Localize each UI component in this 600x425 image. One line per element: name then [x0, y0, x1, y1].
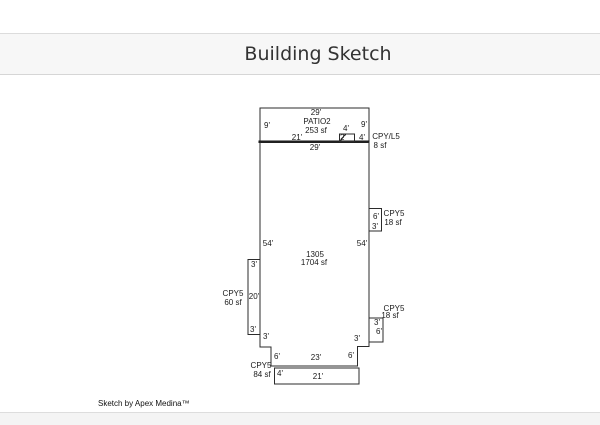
dim-cpyl5-box-inner: 2' — [340, 134, 346, 142]
dim-ru-height: 6' — [373, 213, 379, 221]
area-label-ru-name: CPY5 — [384, 210, 405, 218]
area-label-lc-name: CPY5 — [223, 290, 244, 298]
dim-ru-width: 3' — [372, 223, 378, 231]
area-label-lc-sf: 60 sf — [224, 299, 241, 307]
area-label-main-sf: 1704 sf — [301, 259, 327, 267]
dim-rl-height: 6' — [376, 328, 382, 336]
dim-bc-width: 21' — [313, 373, 323, 381]
dim-lc-top: 3' — [251, 261, 257, 269]
dim-right-54: 54' — [357, 240, 367, 248]
dim-cpyl5-box-right: 4' — [359, 134, 365, 142]
dim-bottom-left-step: 3' — [263, 333, 269, 341]
dim-bc-height: 4' — [277, 370, 283, 378]
dim-bottom-left-6: 6' — [274, 353, 280, 361]
dim-bottom-right-step: 3' — [354, 335, 360, 343]
dim-patio-bottom-left: 21' — [292, 134, 302, 142]
building-sketch-drawing — [0, 0, 600, 424]
dim-main-top-width: 29' — [310, 144, 320, 152]
area-label-ru-sf: 18 sf — [384, 219, 401, 227]
dim-lc-bot: 3' — [250, 326, 256, 334]
area-label-rl-sf: 18 sf — [381, 312, 398, 320]
dim-cpyl5-box-top: 4' — [343, 125, 349, 133]
footer-strip — [0, 412, 600, 425]
dim-patio-left: 9' — [264, 122, 270, 130]
area-label-bc-sf: 84 sf — [253, 371, 270, 379]
dim-rl-width: 3' — [374, 319, 380, 327]
area-label-cpyl5-name: CPY/L5 — [372, 133, 400, 141]
building-sketch-page: Building Sketch 29' 9' PATIO2 253 sf 9' … — [0, 0, 600, 424]
dim-patio-right: 9' — [361, 121, 367, 129]
area-label-patio-name: PATIO2 — [303, 118, 330, 126]
area-label-bc-name: CPY5 — [251, 362, 272, 370]
area-label-patio-sf: 253 sf — [305, 127, 327, 135]
dim-patio-width-top: 29' — [311, 109, 321, 117]
dim-bottom-right-6: 6' — [348, 352, 354, 360]
sketch-credit: Sketch by Apex Medina™ — [98, 399, 190, 408]
dim-bottom-23: 23' — [311, 354, 321, 362]
dim-left-54: 54' — [263, 240, 273, 248]
dim-lc-mid: 20' — [249, 293, 259, 301]
area-label-cpyl5-sf: 8 sf — [374, 142, 387, 150]
